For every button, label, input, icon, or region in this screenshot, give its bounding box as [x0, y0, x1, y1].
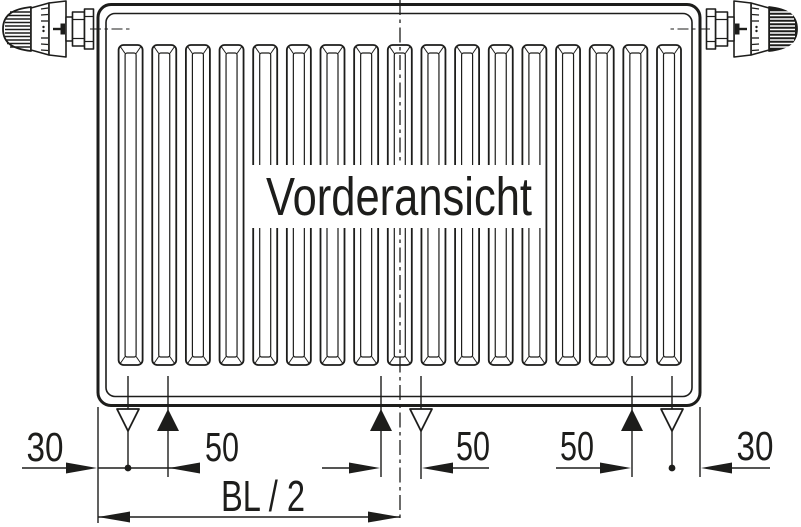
dimension-dot: [669, 465, 676, 472]
filled-triangle-marker: [370, 409, 392, 431]
open-triangle-marker: [661, 409, 683, 431]
radiator-rib: [220, 45, 244, 365]
dim-label-right-spacing: 50: [560, 423, 594, 469]
valve-collar: [728, 17, 735, 41]
open-triangle-marker: [117, 409, 139, 431]
radiator-rib: [186, 45, 210, 365]
dimension-arrow: [368, 512, 400, 523]
dimension-dot: [125, 465, 132, 472]
radiator-rib: [623, 45, 647, 365]
dim-label-right-offset: 30: [737, 423, 774, 469]
radiator-rib: [556, 45, 580, 365]
valve-collar: [66, 17, 73, 41]
valve-scale-ring: [751, 3, 769, 55]
dim-label-center-spacing: 50: [456, 423, 490, 469]
dim-label-half-length: BL / 2: [221, 472, 305, 521]
bottom-dimension-chain: [22, 463, 770, 474]
dimension-arrow: [66, 463, 97, 474]
radiator-rib: [152, 45, 176, 365]
dimension-arrow: [98, 512, 130, 523]
dimension-arrow: [422, 463, 453, 474]
page-title: Vorderansicht: [266, 167, 532, 227]
valve-nut: [716, 12, 728, 46]
dimension-arrow: [701, 463, 732, 474]
radiator-rib: [657, 45, 681, 365]
dim-label-left-offset: 30: [27, 424, 64, 470]
radiator-front-view-drawing: Vorderansicht 30 50 50 50 30 BL / 2: [0, 0, 801, 527]
filled-triangle-marker: [621, 409, 643, 431]
open-triangle-marker: [410, 409, 432, 431]
dimension-arrow: [169, 463, 200, 474]
radiator-rib: [590, 45, 614, 365]
dimension-arrow: [600, 463, 631, 474]
dim-label-left-spacing: 50: [205, 424, 239, 470]
valve-scale-ring: [31, 3, 49, 55]
dimension-arrow: [349, 463, 380, 474]
filled-triangle-marker: [157, 409, 179, 431]
technical-drawing: Vorderansicht 30 50 50 50 30 BL / 2: [0, 0, 801, 527]
radiator-rib: [119, 45, 143, 365]
valve-nut: [73, 12, 85, 46]
